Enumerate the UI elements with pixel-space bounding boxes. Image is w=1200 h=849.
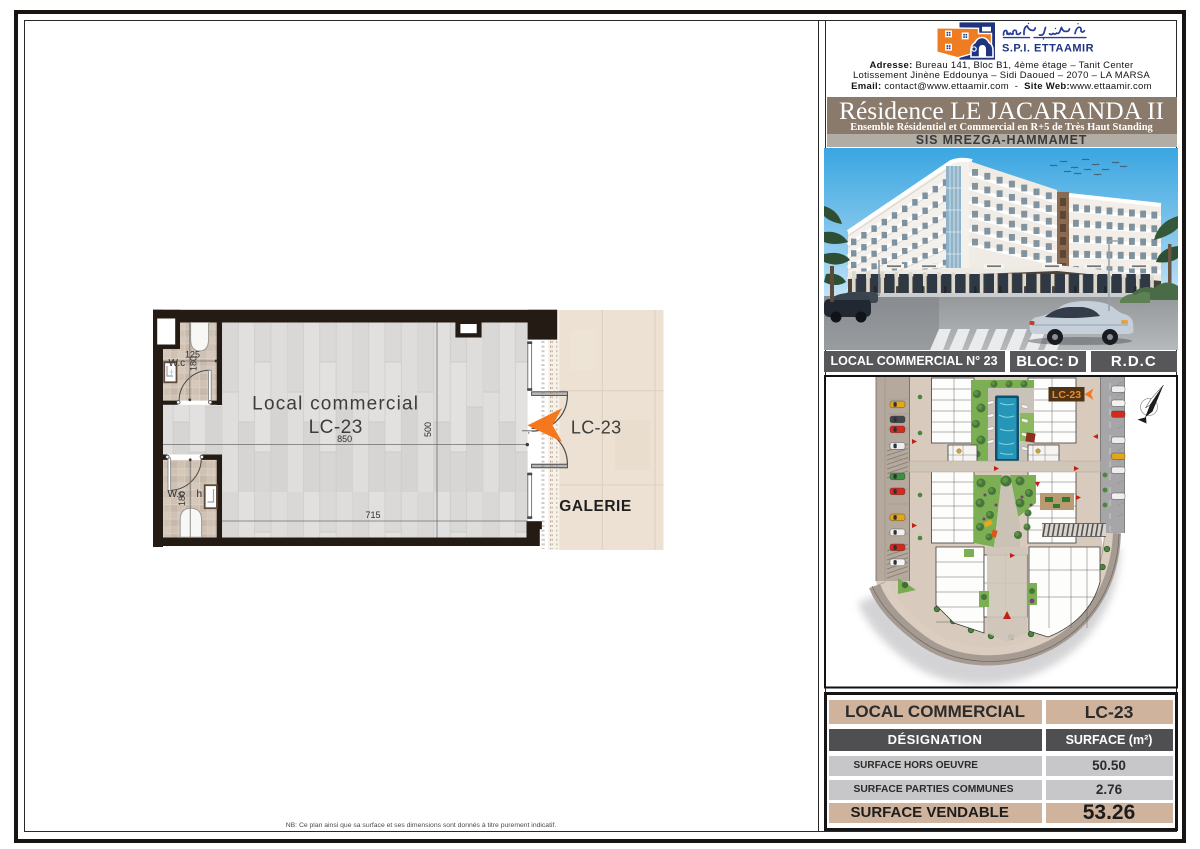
svg-text:500: 500: [423, 422, 433, 437]
svg-text:Local commercial: Local commercial: [252, 394, 419, 415]
svg-text:W.c: W.c: [169, 358, 186, 369]
svg-text:LC-23: LC-23: [309, 417, 363, 438]
svg-text:850: 850: [337, 434, 352, 444]
svg-text:GALERIE: GALERIE: [559, 498, 631, 515]
svg-text:S.P.I. ETTAAMIR: S.P.I. ETTAAMIR: [1002, 43, 1094, 55]
svg-text:715: 715: [365, 510, 380, 520]
svg-text:LC-23: LC-23: [1051, 389, 1080, 401]
svg-text:180: 180: [177, 491, 187, 506]
svg-text:180: 180: [189, 356, 199, 371]
svg-text:LC-23: LC-23: [571, 418, 622, 438]
svg-text:h: h: [197, 489, 203, 500]
